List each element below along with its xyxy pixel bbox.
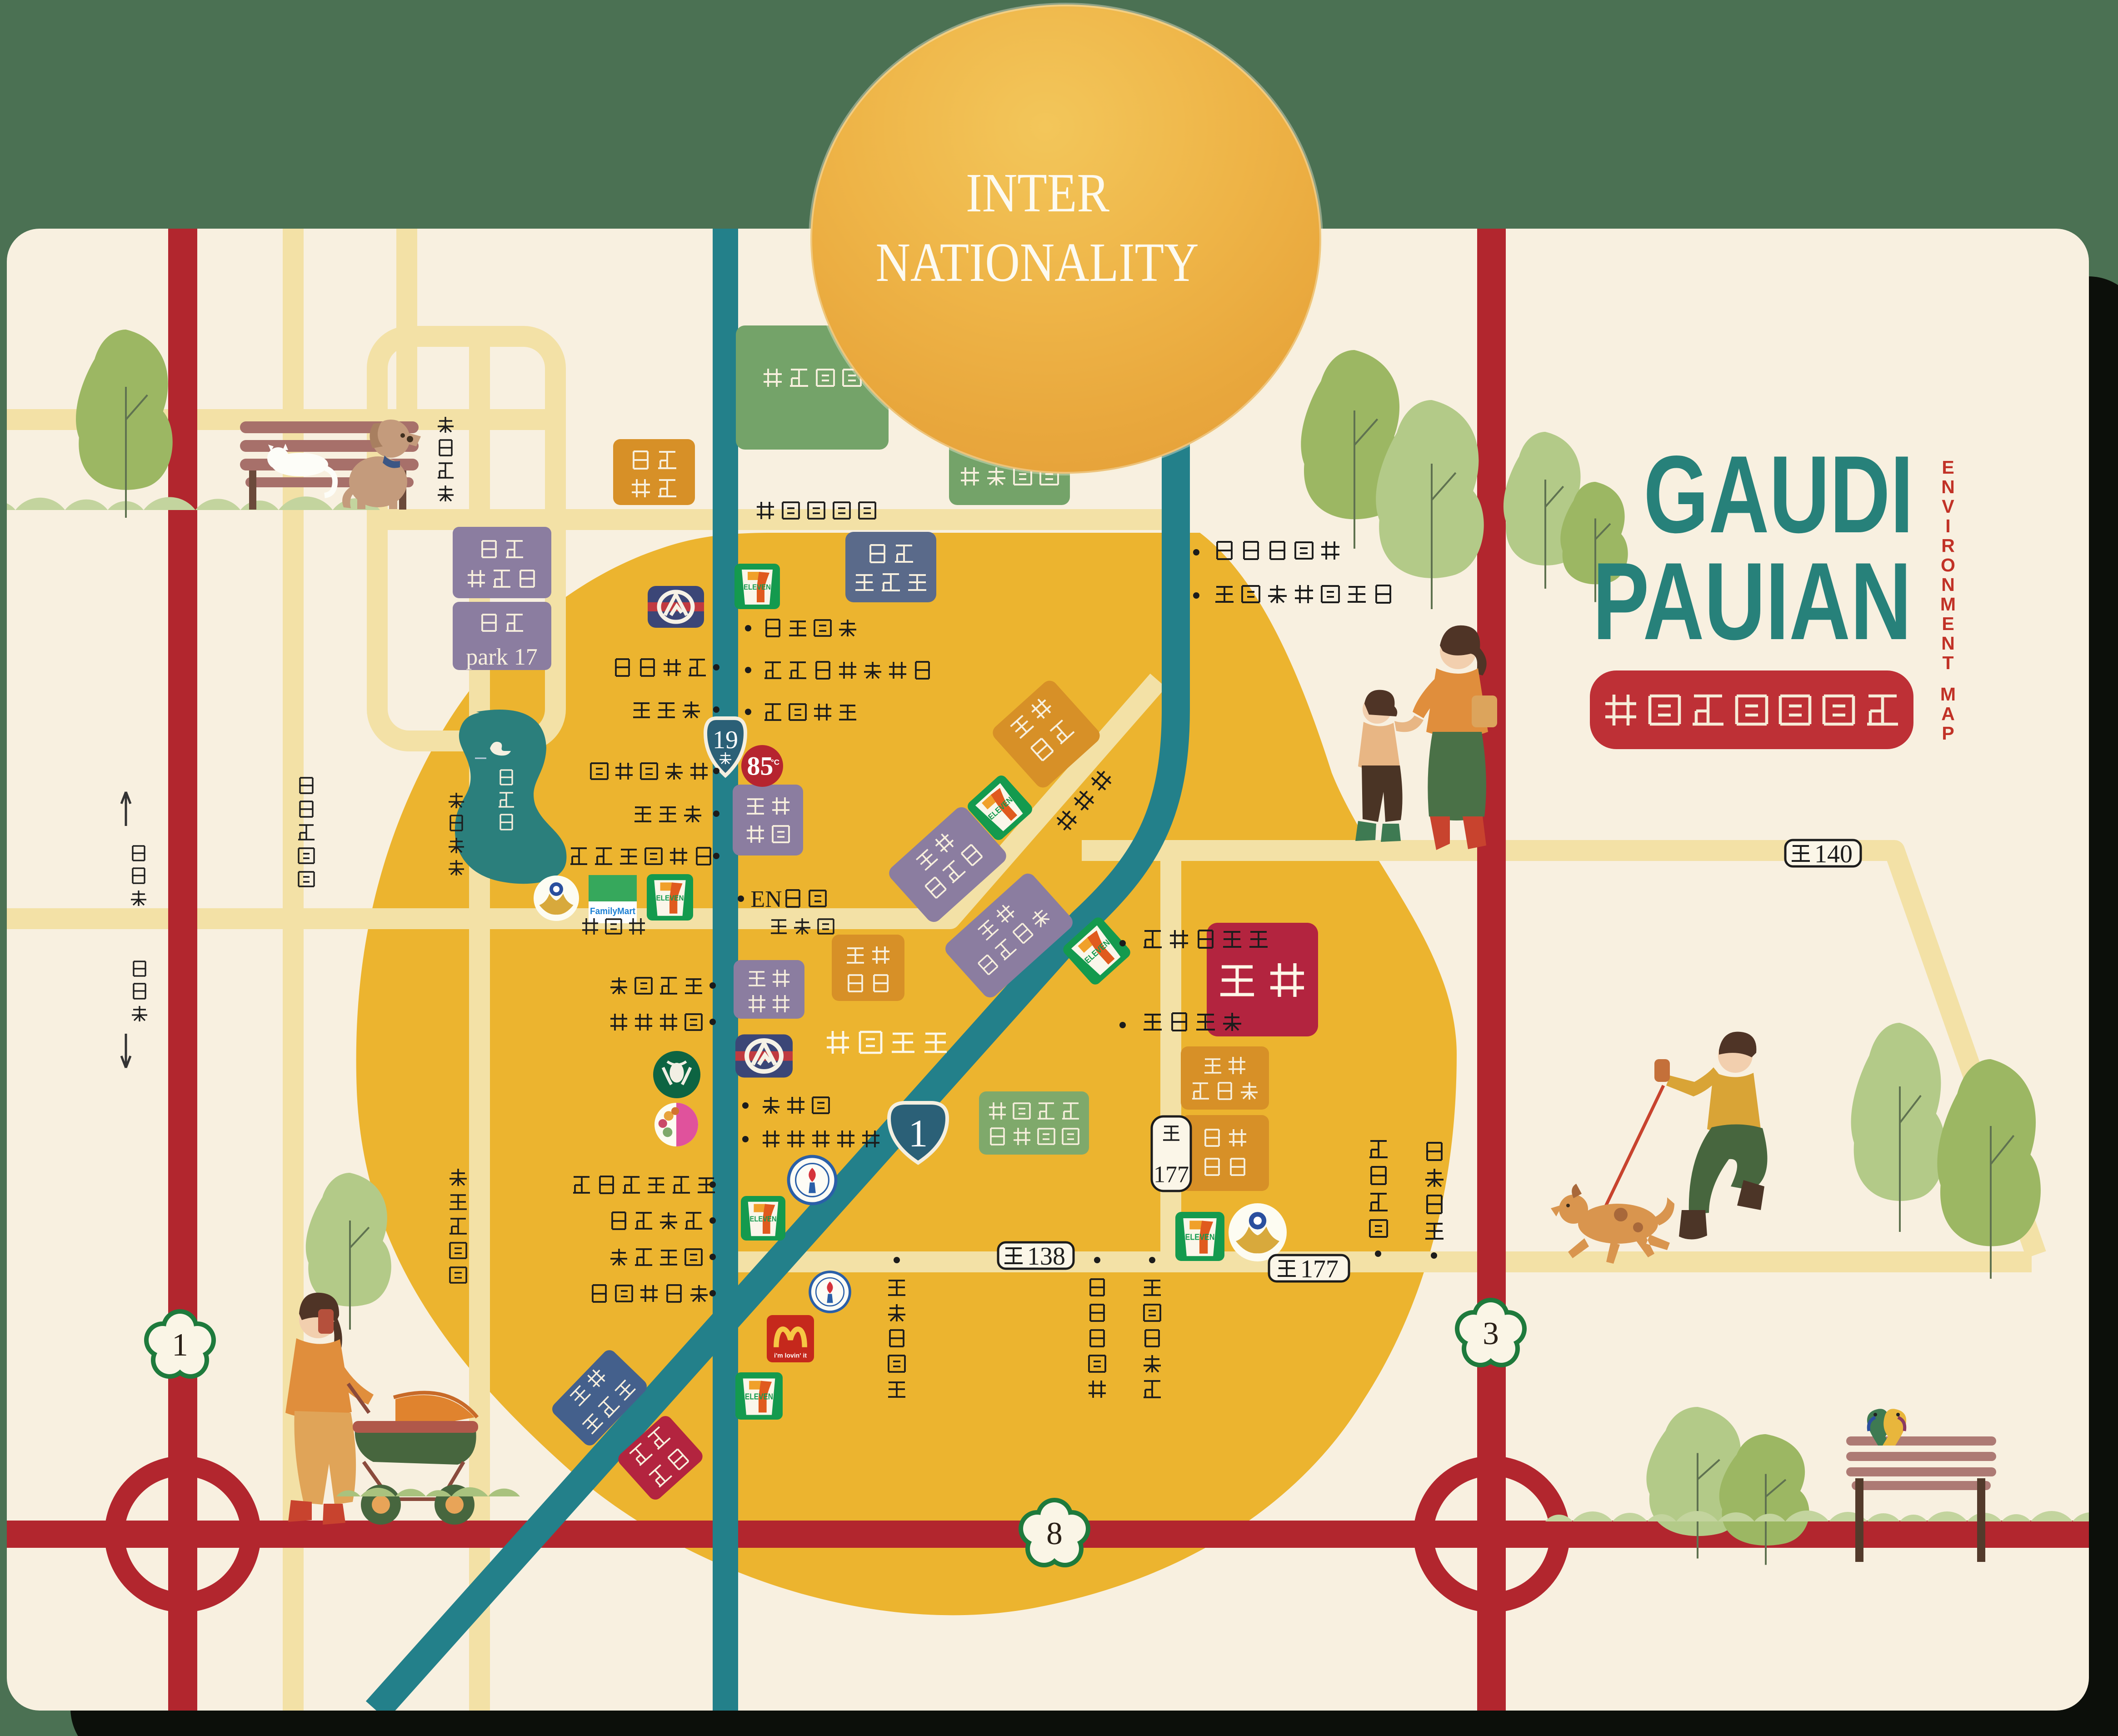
svg-text:I: I xyxy=(1945,515,1950,536)
svg-text:i'm lovin' it: i'm lovin' it xyxy=(774,1352,807,1359)
svg-text:park 17: park 17 xyxy=(466,644,537,670)
svg-text:ELEVEN: ELEVEN xyxy=(656,894,684,902)
svg-text:M: M xyxy=(1940,594,1956,615)
svg-text:R: R xyxy=(1941,535,1955,556)
svg-text:ELEVEN: ELEVEN xyxy=(745,1392,773,1401)
svg-text:ELEVEN: ELEVEN xyxy=(744,583,771,591)
svg-text:N: N xyxy=(1941,633,1955,654)
svg-text:FamilyMart: FamilyMart xyxy=(590,906,635,916)
svg-text:ELEVEN: ELEVEN xyxy=(750,1215,777,1223)
svg-text:°C: °C xyxy=(771,758,779,767)
svg-text:177: 177 xyxy=(1154,1161,1189,1187)
svg-text:V: V xyxy=(1942,496,1954,517)
svg-text:140: 140 xyxy=(1814,840,1853,868)
svg-text:GAUDI: GAUDI xyxy=(1643,433,1913,556)
svg-text:ELEVEN: ELEVEN xyxy=(1185,1233,1215,1242)
svg-text:INTER: INTER xyxy=(966,162,1110,224)
svg-text:138: 138 xyxy=(1027,1242,1065,1271)
svg-text:E: E xyxy=(1942,457,1954,478)
svg-text:PAUIAN: PAUIAN xyxy=(1593,540,1912,663)
svg-text:19: 19 xyxy=(713,726,738,754)
svg-text:P: P xyxy=(1942,723,1954,744)
svg-text:177: 177 xyxy=(1300,1255,1339,1283)
svg-text:O: O xyxy=(1941,555,1955,575)
svg-text:1: 1 xyxy=(172,1327,188,1363)
svg-text:85: 85 xyxy=(747,751,773,780)
svg-text:1: 1 xyxy=(909,1111,928,1155)
svg-text:8: 8 xyxy=(1046,1516,1063,1551)
svg-text:T: T xyxy=(1942,652,1953,673)
svg-text:M: M xyxy=(1940,684,1956,705)
svg-text:A: A xyxy=(1941,703,1955,724)
svg-text:EN: EN xyxy=(750,886,782,912)
svg-text:3: 3 xyxy=(1483,1316,1499,1351)
svg-text:E: E xyxy=(1942,613,1954,634)
svg-text:NATIONALITY: NATIONALITY xyxy=(876,232,1199,293)
svg-text:N: N xyxy=(1941,476,1955,497)
svg-text:N: N xyxy=(1941,574,1955,595)
